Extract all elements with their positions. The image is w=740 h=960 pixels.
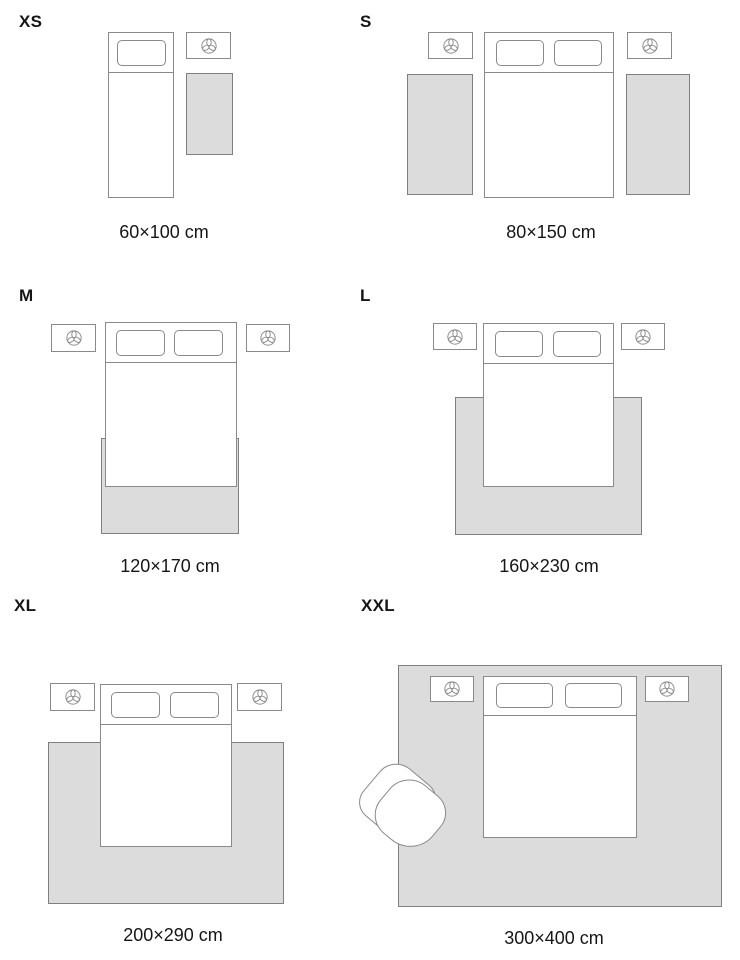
- size-label-xl: XL: [14, 596, 36, 616]
- pillow: [117, 40, 166, 66]
- bed: [483, 323, 614, 487]
- panel-m: M 120×170 cm: [0, 0, 740, 960]
- pillow: [174, 330, 223, 356]
- pillow: [170, 692, 219, 718]
- nightstand: [50, 683, 95, 711]
- nightstand: [621, 323, 665, 350]
- plant-icon: [444, 326, 466, 348]
- panel-xl: XL 200×290 cm: [0, 0, 740, 960]
- panel-xs: XS 60×100 cm: [0, 0, 740, 960]
- panel-s: S 80×150 cm: [0, 0, 740, 960]
- panel-l: L 160×230 cm: [0, 0, 740, 960]
- armchair-back: [352, 755, 444, 847]
- size-caption-xl: 200×290 cm: [73, 925, 273, 946]
- nightstand: [237, 683, 282, 711]
- bed-headboard: [484, 677, 636, 716]
- plant-icon: [62, 686, 84, 708]
- bed: [484, 32, 614, 198]
- pillow: [111, 692, 160, 718]
- bed: [105, 322, 237, 487]
- nightstand: [51, 324, 96, 352]
- nightstand: [428, 32, 473, 59]
- rug-size-guide: XS 60×100 cm S 80×150 cm: [0, 0, 740, 960]
- nightstand: [246, 324, 290, 352]
- plant-icon: [440, 35, 462, 57]
- bed-headboard: [109, 33, 173, 73]
- size-caption-l: 160×230 cm: [449, 556, 649, 577]
- plant-icon: [249, 686, 271, 708]
- bed: [108, 32, 174, 198]
- pillow: [553, 331, 601, 357]
- rug: [48, 742, 284, 904]
- bed: [483, 676, 637, 838]
- nightstand: [433, 323, 477, 350]
- plant-icon: [63, 327, 85, 349]
- panel-xxl: XXL 300×400 cm: [0, 0, 740, 960]
- rug-right: [626, 74, 690, 195]
- rug: [455, 397, 642, 535]
- bed-headboard: [485, 33, 613, 73]
- rug: [101, 438, 239, 534]
- plant-icon: [257, 327, 279, 349]
- plant-icon: [198, 35, 220, 57]
- bed-headboard: [106, 323, 236, 363]
- bed-headboard: [101, 685, 231, 725]
- plant-icon: [441, 678, 463, 700]
- size-caption-xxl: 300×400 cm: [454, 928, 654, 949]
- size-label-s: S: [360, 12, 372, 32]
- armchair-seat: [365, 769, 455, 859]
- size-caption-xs: 60×100 cm: [64, 222, 264, 243]
- pillow: [554, 40, 602, 66]
- bed-headboard: [484, 324, 613, 364]
- plant-icon: [639, 35, 661, 57]
- nightstand: [430, 676, 474, 702]
- pillow: [565, 683, 622, 708]
- size-caption-s: 80×150 cm: [451, 222, 651, 243]
- size-label-xs: XS: [19, 12, 42, 32]
- plant-icon: [632, 326, 654, 348]
- size-label-m: M: [19, 286, 33, 306]
- size-label-l: L: [360, 286, 371, 306]
- pillow: [496, 683, 553, 708]
- pillow: [116, 330, 165, 356]
- size-caption-m: 120×170 cm: [70, 556, 270, 577]
- pillow: [495, 331, 543, 357]
- nightstand: [627, 32, 672, 59]
- rug: [186, 73, 233, 155]
- bed: [100, 684, 232, 847]
- rug: [398, 665, 722, 907]
- nightstand: [186, 32, 231, 59]
- size-label-xxl: XXL: [361, 596, 395, 616]
- nightstand: [645, 676, 689, 702]
- plant-icon: [656, 678, 678, 700]
- pillow: [496, 40, 544, 66]
- rug-left: [407, 74, 473, 195]
